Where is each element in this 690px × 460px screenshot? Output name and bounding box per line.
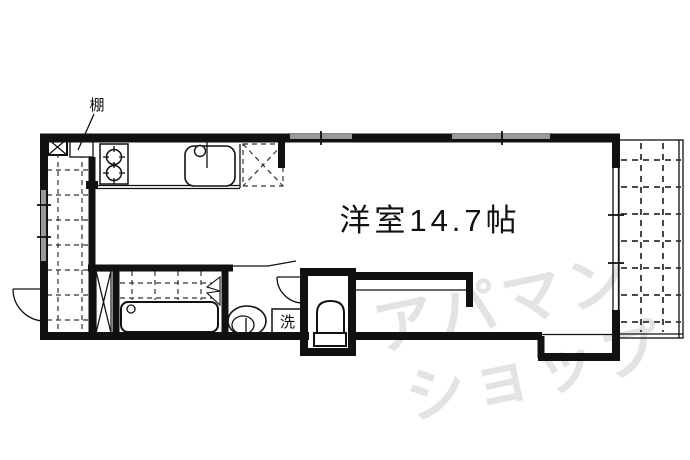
floor-plan-canvas: アパマン ショップ [0, 0, 690, 460]
washer-label: 洗 [280, 314, 295, 331]
bath-drain [127, 305, 135, 313]
closet-strip [96, 271, 111, 333]
room-size-label: 洋室14.7帖 [339, 203, 520, 238]
faucet-handle [195, 146, 206, 157]
shelf-label: 棚 [89, 97, 104, 114]
bathtub [121, 302, 218, 332]
toilet-tank [314, 333, 346, 346]
stove [100, 144, 128, 184]
floor-plan: アパマン ショップ [0, 0, 690, 460]
toilet-bowl [317, 301, 344, 333]
washing-machine-space: 洗 [272, 309, 303, 333]
toilet [314, 301, 346, 346]
